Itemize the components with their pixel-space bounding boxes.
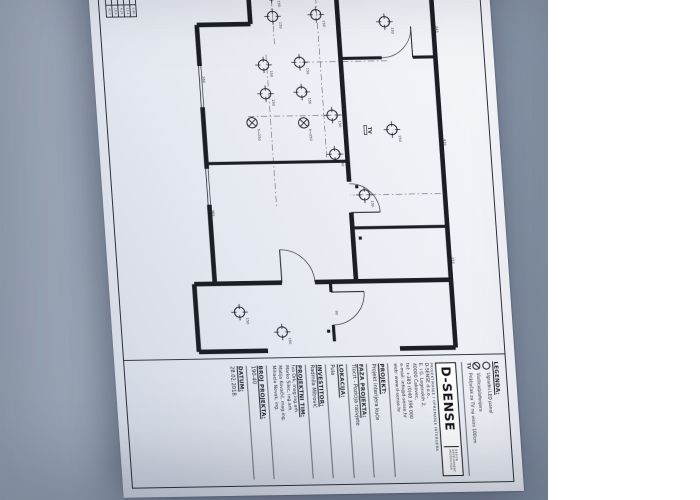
title-block: LEGENDA: Ugradni LED panelVisilica/plafo… [124, 353, 513, 487]
svg-text:h=250: h=250 [308, 129, 313, 141]
svg-text:150: 150 [288, 337, 292, 344]
svg-text:150: 150 [338, 121, 342, 128]
floor-plan-photo: 1501501501501501501501501501501501501501… [0, 0, 548, 500]
logo-side-word: PRODUCTION [447, 449, 452, 472]
legend-item-label: Ugradni LED panel [484, 373, 492, 414]
sheet-content: 1501501501501501501501501501501501501501… [97, 0, 514, 488]
rooms-table: 1····· ······9.802······ ····12.43···· ·… [103, 0, 137, 18]
svg-text:h=250: h=250 [257, 129, 262, 141]
led-panel-icon [482, 362, 491, 370]
logo-section: D-SENSE DESIGNDEVELOPMENTPRODUCTION PROJ… [387, 362, 469, 477]
svg-text:150: 150 [398, 135, 402, 142]
svg-text:150: 150 [390, 27, 394, 34]
logo-side-words: DESIGNDEVELOPMENTPRODUCTION [444, 446, 461, 472]
rooms-table-cell: 9.80 [130, 5, 137, 17]
tv-outlet-icon: TV [465, 363, 470, 370]
svg-text:150: 150 [269, 70, 273, 77]
drawing-sheet: 1501501501501501501501501501501501501501… [86, 0, 524, 498]
company-contact-lines: D-SENSE d.o.o.,E. i G. Legenskih 2,40000… [391, 363, 436, 477]
white-page-padding [548, 0, 700, 500]
rooms-table-cell: 6.25 [118, 5, 125, 17]
svg-text:150: 150 [278, 22, 282, 29]
logo-wordmark: D-SENSE [438, 366, 458, 444]
svg-text:150: 150 [245, 318, 249, 325]
svg-text:150: 150 [305, 68, 309, 75]
floor-plan-drawing: 1501501501501501501501501501501501501501… [159, 0, 465, 365]
rooms-table-row: 5···· ······41.2 [104, 0, 113, 17]
team-section: PROJEKTNI TIM: Iva Ork, mag.ing.arh.Mark… [266, 365, 313, 479]
floor-plan-area: 1501501501501501501501501501501501501501… [97, 0, 505, 360]
svg-text:150: 150 [370, 200, 374, 207]
pendant-light-icon [472, 362, 481, 370]
rooms-table-cell: 41.2 [106, 6, 113, 18]
legend-section: LEGENDA: Ugradni LED panelVisilica/plafo… [461, 361, 509, 475]
svg-text:150: 150 [450, 257, 454, 264]
svg-text:150: 150 [277, 0, 281, 7]
screenshot-canvas: 1501501501501501501501501501501501501501… [0, 0, 700, 500]
svg-text:90: 90 [334, 310, 338, 315]
svg-text:385: 385 [211, 210, 215, 217]
svg-text:150: 150 [307, 98, 311, 105]
svg-text:150: 150 [340, 160, 344, 167]
svg-text:150: 150 [321, 20, 325, 27]
svg-text:260: 260 [201, 76, 205, 83]
svg-text:150: 150 [271, 99, 275, 106]
rooms-table-cell: 12.4 [124, 5, 131, 17]
rooms-table-cell: 18.6 [112, 5, 119, 17]
svg-text:245: 245 [434, 26, 438, 33]
legend-item-label: Visilica/plafonjera [474, 373, 482, 412]
svg-text:410: 410 [442, 139, 446, 146]
